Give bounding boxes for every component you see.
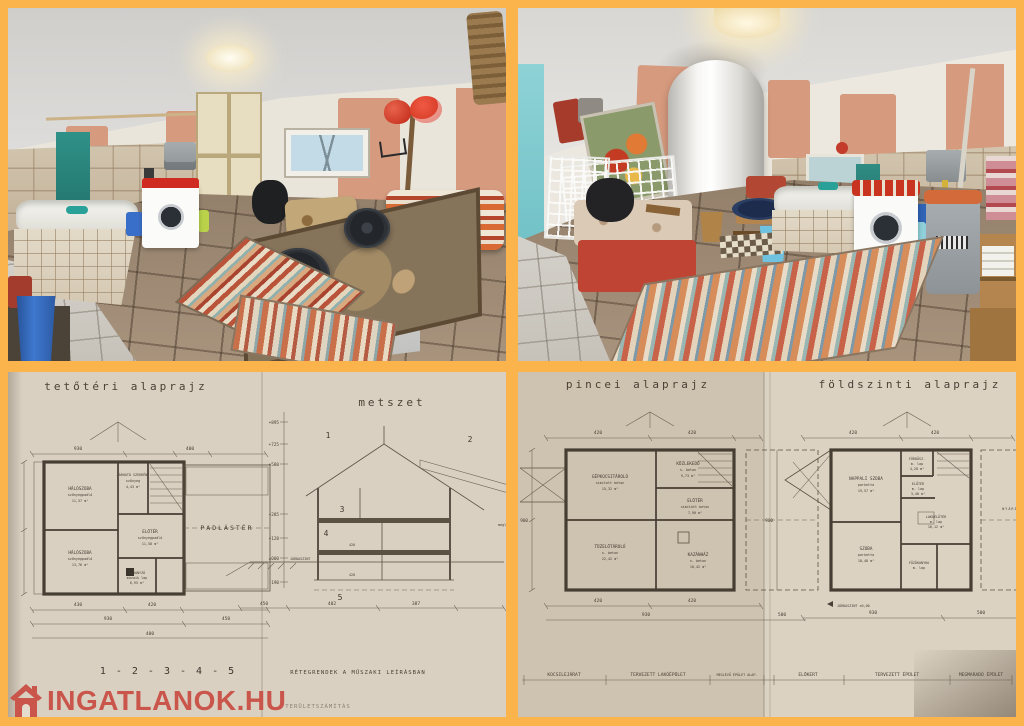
- room-floor: s. beton: [690, 559, 706, 563]
- dim-label: 420: [349, 543, 355, 547]
- room-area: 10,42 m²: [690, 565, 706, 569]
- dim-label: 930: [642, 612, 651, 618]
- dim-label: 400: [186, 446, 195, 452]
- section-mark: 1: [326, 431, 331, 440]
- strip-label: ELŐKERT: [798, 671, 818, 678]
- room-area: 13,76 m²: [72, 563, 88, 567]
- soap-tray: [66, 206, 88, 214]
- room-area: 15,32 m²: [602, 487, 618, 491]
- room-area: 19,57 m²: [858, 489, 874, 493]
- room-floor: s. beton: [680, 468, 696, 472]
- black-bag: [252, 180, 288, 224]
- round-sticker: [836, 142, 848, 154]
- room-floor: szőnyegpadló: [138, 536, 163, 540]
- section-title: metszet: [358, 396, 425, 409]
- strip-label: MEGLÉVŐ ÉPÜLET ALAP.: [717, 672, 758, 677]
- dim-label: 500: [778, 612, 787, 618]
- elevation-label: +285: [269, 512, 280, 518]
- bathtub-tiled-apron: [14, 229, 136, 305]
- elevation-label: -190: [269, 580, 280, 586]
- room-area: 4,28 m²: [910, 467, 924, 471]
- photo-laundry-room-right[interactable]: [518, 8, 1016, 361]
- gas-meter: [164, 142, 196, 170]
- dim-label: 420: [849, 430, 858, 436]
- red-blanket-on-machine: [852, 180, 920, 196]
- section-mark: 2: [468, 435, 473, 444]
- strip-label: KOCSILEJÁRAT: [547, 671, 580, 678]
- dim-label: 500: [977, 610, 986, 616]
- section-mark: 3: [340, 505, 345, 514]
- wicker-basket: [466, 11, 506, 106]
- room-label: ELŐTÉR: [912, 481, 925, 486]
- room-floor: s. beton: [602, 551, 618, 555]
- room-floor: m. lap: [912, 487, 924, 491]
- room-floor: mozaik lap: [127, 576, 147, 580]
- paper: [8, 372, 506, 717]
- ceiling-lamp: [206, 44, 254, 72]
- room-area: 6,95 m²: [130, 581, 144, 585]
- watermark[interactable]: INGATLANOK.HU: [10, 684, 286, 717]
- room-floor: szőnyegpadló: [68, 557, 93, 561]
- dim-label: 930: [869, 610, 878, 616]
- section-mark: 4: [324, 529, 329, 538]
- elevation-label: ±000: [269, 556, 280, 562]
- room-label: SZOBA: [860, 546, 873, 552]
- black-bag: [586, 178, 634, 222]
- dim-label: 420: [931, 430, 940, 436]
- dim-label: 387: [412, 601, 421, 607]
- plan-sheet-basement-ground[interactable]: pincei alaprajz földszinti alaprajz 420 …: [518, 372, 1016, 717]
- layer-note: RÉTEGRENDEK A MŰSZAKI LEÍRÁSBAN: [290, 668, 425, 676]
- wood-cabinet-corner: [970, 308, 1016, 361]
- salmon-wall-patch: [768, 80, 810, 158]
- room-floor: simított beton: [681, 505, 710, 509]
- room-floor: parketta: [858, 553, 874, 557]
- room-area: 16,12 m²: [928, 525, 944, 529]
- ground-plan-title: földszinti alaprajz: [819, 378, 1002, 391]
- room-area: 3,40 m²: [911, 492, 925, 496]
- dim-label: 400: [146, 631, 155, 637]
- ceiling-lamp: [714, 8, 780, 38]
- dim-label: 420: [594, 430, 603, 436]
- room-floor: szőnyeg: [126, 479, 140, 483]
- dim-label: 420: [688, 430, 697, 436]
- window: [286, 130, 368, 176]
- photo-laundry-room-left[interactable]: [8, 8, 506, 361]
- red-pot: [410, 96, 442, 123]
- pink-linen: [986, 156, 1016, 220]
- white-linen-stack: [982, 246, 1014, 276]
- listing-collage-page: { "page": {"background_color": "#FBB34C"…: [0, 0, 1024, 726]
- washing-machine-top: [142, 178, 199, 188]
- room-area: 7,90 m²: [688, 511, 702, 515]
- room-label: HÁLÓSZOBA: [68, 485, 92, 492]
- orange-towel-on-bin: [924, 190, 982, 204]
- room-label: PADLÁSTÉR: [200, 523, 253, 532]
- dim-label: 930: [74, 446, 83, 452]
- room-floor: simított beton: [596, 481, 625, 485]
- dim-label: 420: [148, 602, 157, 608]
- dim-label: 420: [349, 573, 355, 577]
- room-label: JÁRHATÓ SZEKRÉNY: [117, 472, 150, 477]
- room-area: 4,43 m²: [126, 485, 140, 489]
- basement-plan-title: pincei alaprajz: [566, 378, 710, 391]
- soap-tray: [818, 182, 838, 190]
- room-label: FŐZŐKONYHA: [909, 560, 929, 565]
- detergent-bottle: [198, 210, 209, 232]
- floor-slab: [318, 518, 450, 523]
- room-area: 18,48 m²: [858, 559, 874, 563]
- room-floor: m. lap: [930, 520, 942, 524]
- dim-label: 420: [594, 598, 603, 604]
- level-note: JÁRDASZINT ±0,00: [837, 603, 870, 608]
- washing-machine-door: [158, 204, 184, 230]
- room-label: TÜZELŐTÁROLÓ: [594, 543, 625, 550]
- red-helmet: [384, 100, 411, 124]
- dim-label: 900: [765, 518, 773, 524]
- dim-label: 450: [260, 601, 269, 607]
- dim-label: 430: [74, 602, 83, 608]
- weight-plate-small: [344, 208, 390, 248]
- room-label: KAZÁNHÁZ: [688, 551, 709, 558]
- room-label: NYÁRIKONYHA: [1002, 506, 1016, 511]
- room-area: 22,42 m²: [602, 557, 618, 561]
- room-label: HÁLÓSZOBA: [68, 549, 92, 556]
- washing-machine-door: [870, 212, 902, 244]
- elevation-label: +725: [269, 442, 280, 448]
- room-floor: parketta: [858, 483, 874, 487]
- room-label: LAKÓELŐTÉR: [926, 514, 947, 519]
- section-mark: 5: [338, 593, 343, 602]
- blue-canister: [126, 212, 143, 236]
- footer-note: TERÜLETSZÁMÍTÁS: [285, 702, 351, 710]
- room-area: 11,57 m²: [72, 499, 88, 503]
- room-area: 11,58 m²: [142, 542, 158, 546]
- room-label: FÜRDŐSZ.: [909, 456, 925, 461]
- room-label: NAPPALI SZOBA: [849, 476, 883, 482]
- elevation-note: JÁRDASZINT: [290, 556, 310, 561]
- dim-label: 930: [104, 616, 113, 622]
- attic-and-section-drawing: tetőtéri alaprajz metszet 930 400 HÁL: [8, 372, 506, 717]
- elevation-label: +580: [269, 462, 280, 468]
- floor-slab: [318, 550, 450, 555]
- room-label: ZUHANYZÓ: [129, 570, 145, 575]
- elevation-label: +895: [269, 420, 280, 426]
- dim-label: 420: [688, 598, 697, 604]
- dim-label: 402: [328, 601, 337, 607]
- house-icon: [10, 684, 42, 717]
- room-floor: m. lap: [911, 462, 923, 466]
- room-floor: m. lap: [913, 566, 925, 570]
- blue-bucket: [14, 296, 58, 361]
- dim-label: 900: [520, 518, 528, 524]
- attic-plan-title: tetőtéri alaprajz: [44, 380, 208, 393]
- room-floor: szőnyegpadló: [68, 493, 93, 497]
- layer-numbers: 1 - 2 - 3 - 4 - 5: [100, 666, 236, 677]
- dim-label: 450: [222, 616, 231, 622]
- elevation-label: +128: [269, 536, 280, 542]
- clothes-hanger: [379, 138, 407, 157]
- watermark-brand: INGATLANOK.HU: [47, 685, 286, 717]
- basement-and-ground-drawing: pincei alaprajz földszinti alaprajz 420 …: [518, 372, 1016, 717]
- plan-sheet-attic-section[interactable]: tetőtéri alaprajz metszet 930 400 HÁL: [8, 372, 506, 717]
- existing-building-note: meglévő épület: [498, 523, 506, 527]
- room-label: KÖZLEKEDŐ: [676, 460, 700, 467]
- room-area: 9,73 m²: [681, 474, 695, 478]
